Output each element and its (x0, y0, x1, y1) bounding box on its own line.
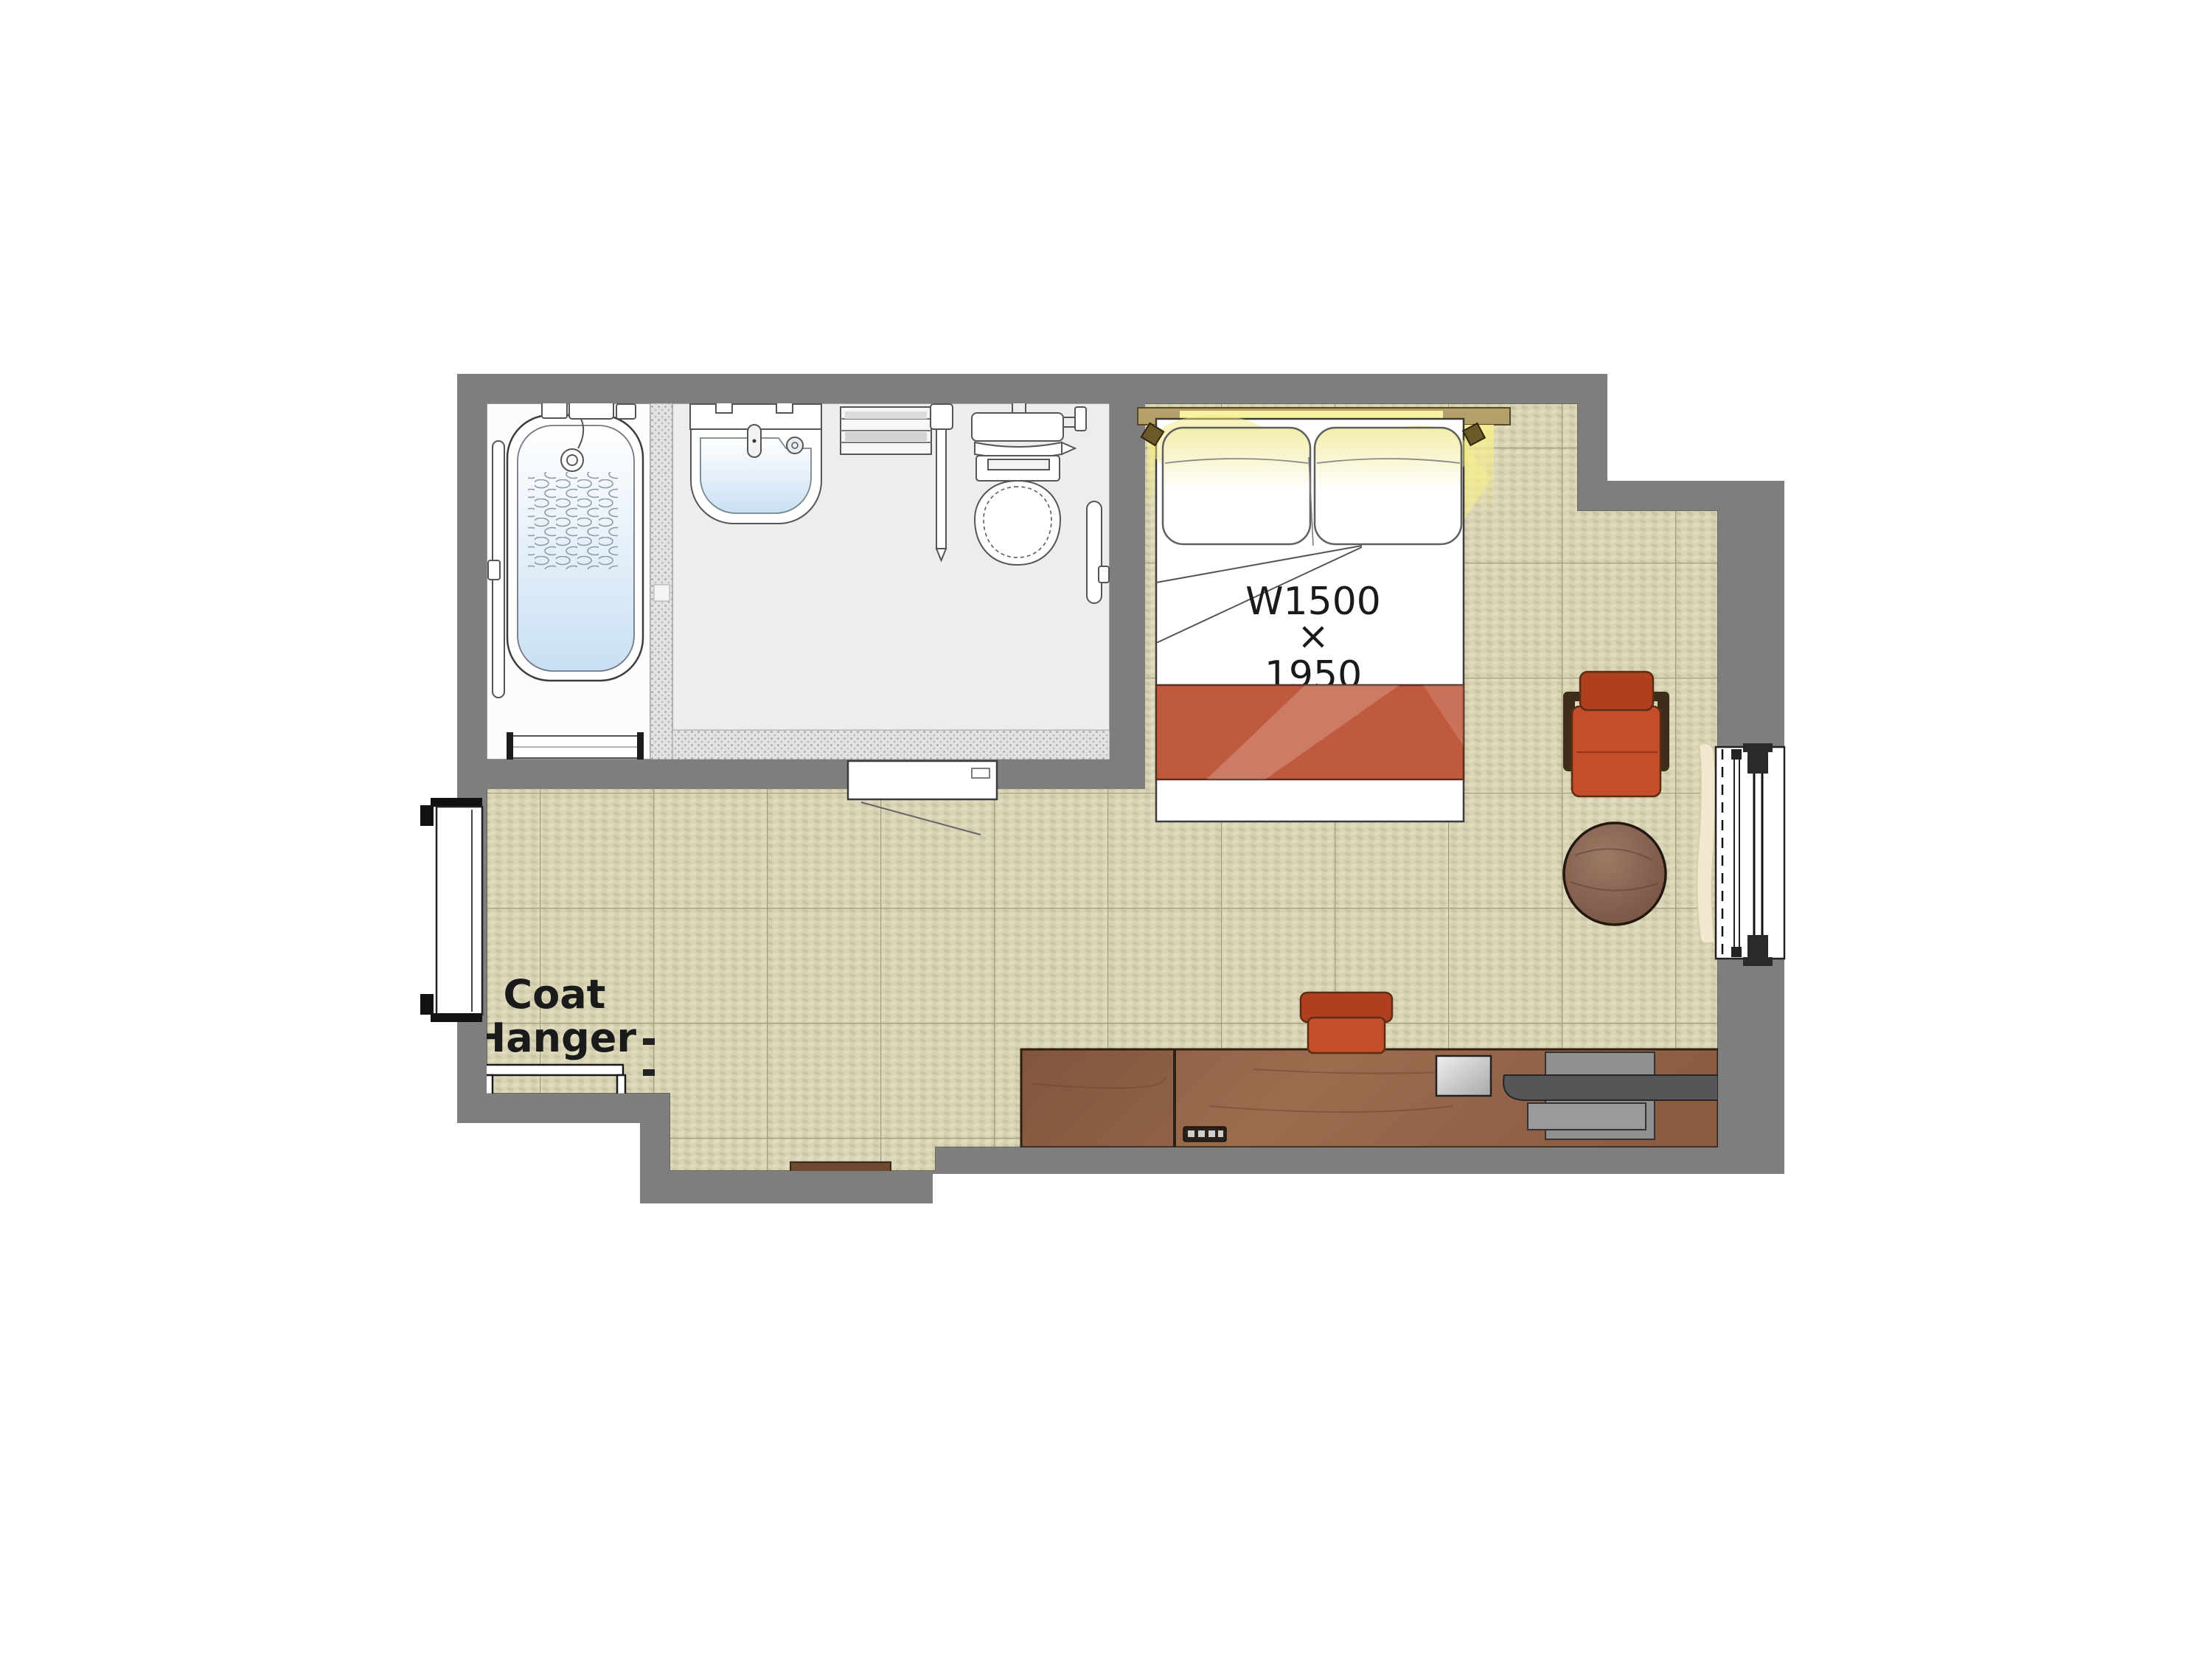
bathtub-room-door (507, 732, 644, 762)
lounge-chair-headrest (1580, 672, 1653, 710)
desk-tray (1436, 1056, 1491, 1096)
bed: W1500 × 1950 (1138, 408, 1510, 821)
bathroom-right-wall (1110, 403, 1145, 789)
bathroom (487, 397, 1145, 835)
floor-plan: W1500 × 1950 (0, 0, 2212, 1668)
window-right (1716, 743, 1784, 966)
tv-stand (1528, 1103, 1646, 1130)
pillow-left (1163, 428, 1310, 544)
coat-label-line1: Coat (504, 971, 606, 1018)
coat-label-line2: Hanger (473, 1015, 636, 1061)
dimension-separator: × (1297, 614, 1329, 658)
floor-plan-page: W1500 × 1950 (0, 0, 2212, 1668)
washbasin (690, 401, 821, 524)
bathtub-mat (528, 472, 618, 569)
pillow-right (1315, 428, 1461, 544)
towel-rack (841, 407, 931, 454)
desk-chair (1301, 993, 1392, 1053)
window-left (420, 798, 482, 1022)
blanket (1156, 685, 1464, 779)
desk (1021, 1049, 1718, 1147)
desk-chair-seat (1308, 1018, 1385, 1053)
desk-switch-panel (1183, 1127, 1226, 1141)
side-table (1564, 823, 1666, 925)
shower-drain-strip (672, 730, 1110, 760)
partition-wall (650, 403, 672, 760)
bathroom-bottom-wall (487, 760, 1145, 789)
tv-screen (1503, 1075, 1718, 1100)
